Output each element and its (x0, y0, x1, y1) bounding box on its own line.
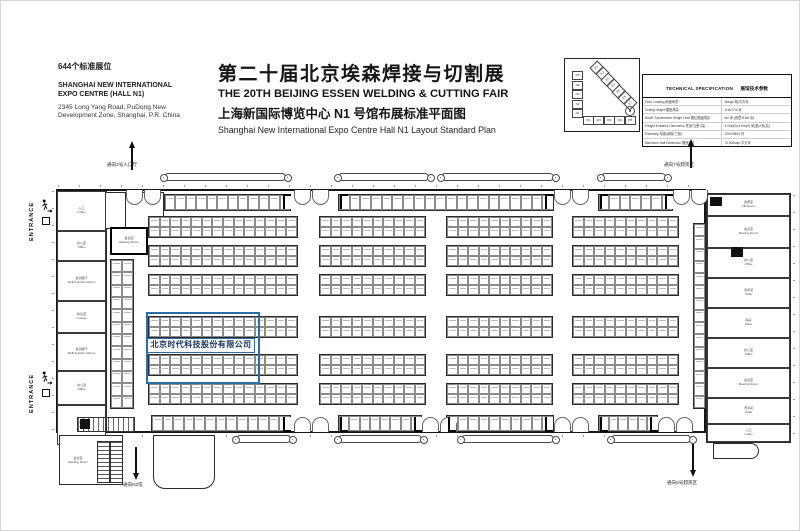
booth-cell (615, 285, 626, 295)
booth-cell (500, 317, 511, 327)
booth-cell (394, 384, 405, 394)
booth-cell (341, 327, 352, 337)
booth-cell (205, 416, 216, 431)
booth-cell (255, 246, 266, 256)
booth-cell (415, 256, 426, 266)
booth-cell (532, 195, 543, 210)
booth-cell (468, 227, 479, 237)
booth-cell (510, 355, 521, 365)
booth-cell (223, 227, 234, 237)
booth-cell (383, 355, 394, 365)
fire-door-mark (600, 417, 608, 432)
booth-cell (647, 394, 658, 404)
booth-cell (170, 384, 181, 394)
booth-cell (341, 365, 352, 375)
booth-cell (415, 285, 426, 295)
booth-cell (202, 227, 213, 237)
booth-cell (170, 246, 181, 256)
booth-cell (191, 246, 202, 256)
door-arc (294, 190, 311, 205)
booth-cell (647, 256, 658, 266)
booth-cell (584, 327, 595, 337)
booth-cell (605, 327, 616, 337)
booth-cell (500, 217, 511, 227)
booth-cell (111, 334, 122, 346)
booth-cell (403, 195, 414, 210)
booth-cell (458, 275, 469, 285)
booth-cell (265, 285, 276, 295)
booth-cell (276, 275, 287, 285)
booth-cell (276, 327, 287, 337)
booth-block (151, 415, 291, 432)
booth-cell (458, 416, 469, 431)
entrance-door-symbol-top (42, 217, 50, 225)
booth-cell (202, 256, 213, 266)
booth-cell (404, 394, 415, 404)
booth-cell (394, 275, 405, 285)
booth-cell (383, 384, 394, 394)
booth-cell (181, 285, 192, 295)
booth-cell (500, 416, 511, 431)
booth-cell (468, 355, 479, 365)
booth-cell (373, 246, 384, 256)
booth-cell (489, 327, 500, 337)
booth-cell (160, 246, 171, 256)
booth-cell (149, 256, 160, 266)
door-arc (676, 417, 693, 432)
canopy-pole (160, 174, 168, 182)
booth-cell (468, 416, 479, 431)
canopy (338, 435, 422, 443)
booth-cell (216, 416, 227, 431)
booth-cell (594, 227, 605, 237)
booth-cell (181, 394, 192, 404)
booth-cell (265, 355, 276, 365)
booth-cell (181, 256, 192, 266)
booth-cell (500, 355, 511, 365)
booth-cell (446, 195, 457, 210)
booth-cell (265, 227, 276, 237)
booth-cell (636, 394, 647, 404)
booth-cell (202, 246, 213, 256)
booth-cell (404, 365, 415, 375)
booth-cell (383, 227, 394, 237)
booth-cell (605, 246, 616, 256)
booth-cell (404, 285, 415, 295)
booth-cell (202, 394, 213, 404)
arrow-entrance2-label: 通向2号入口厅 (107, 162, 137, 168)
booth-cell (234, 246, 245, 256)
floor-plan-page: 644个标准展位 SHANGHAI NEW INTERNATIONAL EXPO… (0, 0, 800, 531)
booth-cell (111, 322, 122, 334)
booth-cell (694, 334, 705, 346)
booth-block (572, 274, 679, 296)
booth-cell (163, 416, 174, 431)
booth-cell (542, 327, 553, 337)
booth-cell (234, 217, 245, 227)
booth-cell (584, 246, 595, 256)
booth-block (446, 245, 553, 267)
booth-cell (122, 371, 133, 383)
booth-cell (657, 317, 668, 327)
arrow-unload6-label: 通向6号卸货区 (667, 480, 697, 486)
booth-cell (594, 355, 605, 365)
booth-block (572, 245, 679, 267)
booth-cell (615, 275, 626, 285)
booth-cell (269, 416, 280, 431)
booth-cell (276, 394, 287, 404)
door-arc (144, 190, 161, 205)
booth-cell (122, 359, 133, 371)
booth-cell (594, 317, 605, 327)
perimeter-room: 会议室Meeting Room (707, 216, 790, 248)
booth-cell (394, 327, 405, 337)
stairs-core (80, 419, 90, 429)
booth-cell (191, 217, 202, 227)
fire-door-mark (650, 417, 658, 432)
booth-cell (341, 394, 352, 404)
canopy-pole (457, 436, 465, 444)
right-wing-lift (731, 247, 743, 257)
booth-cell (352, 384, 363, 394)
booth-cell (255, 285, 266, 295)
booth-cell (468, 327, 479, 337)
booth-cell (286, 227, 297, 237)
booth-cell (265, 217, 276, 227)
booth-cell (594, 217, 605, 227)
booth-cell (500, 227, 511, 237)
booth-cell (373, 327, 384, 337)
booth-cell (276, 365, 287, 375)
booth-cell (447, 217, 458, 227)
booth-cell (542, 355, 553, 365)
booth-cell (694, 347, 705, 359)
booth-cell (694, 273, 705, 285)
booth-cell (415, 227, 426, 237)
booth-cell (341, 217, 352, 227)
canopy (601, 173, 666, 181)
booth-cell (468, 285, 479, 295)
booth-cell (647, 365, 658, 375)
booth-cell (584, 365, 595, 375)
booth-cell (331, 365, 342, 375)
booth-cell (521, 256, 532, 266)
right-dock (713, 443, 759, 459)
booth-cell (647, 355, 658, 365)
booth-cell (636, 285, 647, 295)
booth-cell (521, 394, 532, 404)
booth-cell (605, 275, 616, 285)
booth-cell (373, 227, 384, 237)
booth-cell (425, 195, 436, 210)
entrance-label-bottom: ENTRANCE (29, 367, 35, 413)
booth-cell (584, 384, 595, 394)
room-label-en: Office (78, 388, 86, 392)
booth-cell (573, 355, 584, 365)
booth-cell (458, 256, 469, 266)
booth-cell (415, 355, 426, 365)
booth-cell (373, 317, 384, 327)
fire-door-mark (448, 417, 456, 432)
booth-cell (668, 246, 679, 256)
booth-cell (404, 327, 415, 337)
booth-cell (510, 384, 521, 394)
booth-cell (362, 256, 373, 266)
booth-cell (458, 394, 469, 404)
booth-cell (341, 355, 352, 365)
booth-cell (286, 317, 297, 327)
booth-cell (362, 384, 373, 394)
booth-cell (636, 365, 647, 375)
booth-cell (584, 355, 595, 365)
booth-cell (194, 416, 205, 431)
booth-cell (255, 256, 266, 266)
door-arc (554, 417, 571, 432)
booth-cell (584, 285, 595, 295)
booth-cell (349, 416, 359, 431)
booth-cell (628, 416, 638, 431)
booth-cell (573, 246, 584, 256)
booth-cell (383, 256, 394, 266)
canopy-pole (427, 174, 435, 182)
booth-cell (615, 246, 626, 256)
perimeter-room: 休息室Lounge (57, 301, 106, 333)
fire-door-mark (665, 194, 673, 209)
booth-cell (694, 371, 705, 383)
booth-cell (468, 256, 479, 266)
booth-cell (259, 195, 269, 210)
booth-cell (636, 327, 647, 337)
booth-cell (668, 365, 679, 375)
booth-cell (202, 275, 213, 285)
booth-cell (657, 355, 668, 365)
booth-cell (276, 384, 287, 394)
booth-cell (500, 384, 511, 394)
booth-cell (521, 217, 532, 227)
room-label-en: Meeting Room (739, 383, 759, 387)
room-label-en: Store (745, 323, 752, 327)
booth-cell (286, 256, 297, 266)
booth-block (319, 316, 426, 338)
booth-cell (694, 261, 705, 273)
perimeter-room: 多功能厅Multi-Function Room (57, 333, 106, 371)
booth-cell (626, 317, 637, 327)
booth-cell (657, 285, 668, 295)
booth-cell (594, 384, 605, 394)
booth-cell (331, 275, 342, 285)
booth-cell (542, 365, 553, 375)
booth-cell (394, 285, 405, 295)
booth-cell (276, 227, 287, 237)
booth-cell (510, 394, 521, 404)
booth-cell (404, 317, 415, 327)
room-label-en: Toilet (745, 411, 752, 415)
booth-cell (265, 327, 276, 337)
booth-cell (234, 227, 245, 237)
booth-cell (415, 317, 426, 327)
canopy (164, 173, 286, 181)
booth-cell (255, 275, 266, 285)
booth-cell (489, 256, 500, 266)
booth-cell (152, 416, 163, 431)
booth-cell (468, 365, 479, 375)
booth-cell (499, 195, 510, 210)
booth-cell (111, 346, 122, 358)
booth-block (572, 354, 679, 376)
booth-cell (165, 195, 175, 210)
booth-cell (371, 195, 382, 210)
booth-cell (382, 195, 393, 210)
booth-cell (352, 217, 363, 227)
booth-cell (594, 327, 605, 337)
booth-cell (615, 384, 626, 394)
booth-cell (352, 317, 363, 327)
door-arc (294, 417, 311, 432)
booth-cell (212, 394, 223, 404)
booth-cell (435, 195, 446, 210)
booth-cell (605, 285, 616, 295)
booth-cell (331, 327, 342, 337)
booth-cell (181, 384, 192, 394)
booth-cell (352, 394, 363, 404)
booth-cell (626, 275, 637, 285)
booth-cell (237, 416, 248, 431)
booth-block (446, 415, 554, 432)
booth-cell (383, 327, 394, 337)
booth-cell (223, 275, 234, 285)
booth-cell (694, 249, 705, 261)
booth-cell (694, 298, 705, 310)
room-label-en: Lounge (76, 317, 86, 321)
booth-cell (489, 275, 500, 285)
booth-cell (383, 365, 394, 375)
booth-cell (370, 416, 380, 431)
booth-cell (531, 384, 542, 394)
n2-link-corridor (153, 435, 215, 489)
booth-cell (415, 246, 426, 256)
booth-cell (341, 317, 352, 327)
booth-cell (383, 394, 394, 404)
booth-cell (392, 195, 403, 210)
booth-cell (510, 365, 521, 375)
booth-cell (234, 256, 245, 266)
booth-cell (320, 256, 331, 266)
booth-cell (320, 275, 331, 285)
booth-cell (647, 285, 658, 295)
booth-cell (404, 384, 415, 394)
booth-cell (510, 217, 521, 227)
booth-cell (531, 217, 542, 227)
booth-cell (573, 317, 584, 327)
booth-cell (362, 317, 373, 327)
booth-cell (573, 227, 584, 237)
booth-cell (286, 394, 297, 404)
booth-cell (244, 275, 255, 285)
booth-cell (160, 256, 171, 266)
arrow-head (690, 470, 696, 477)
booth-block (319, 216, 426, 238)
booth-cell (605, 227, 616, 237)
room-label-en: Lobby (77, 211, 85, 215)
booth-cell (594, 394, 605, 404)
booth-cell (320, 227, 331, 237)
booth-cell (122, 309, 133, 321)
booth-cell (542, 227, 553, 237)
booth-cell (191, 227, 202, 237)
booth-cell (573, 275, 584, 285)
booth-cell (331, 217, 342, 227)
booth-cell (415, 217, 426, 227)
booth-cell (615, 217, 626, 227)
booth-cell (609, 195, 619, 210)
booth-cell (415, 327, 426, 337)
booth-cell (111, 383, 122, 395)
booth-cell (636, 384, 647, 394)
booth-cell (362, 217, 373, 227)
booth-cell (479, 416, 490, 431)
booth-cell (479, 355, 490, 365)
booth-cell (468, 394, 479, 404)
annex-room-label-en: Meeting Room (68, 461, 88, 465)
booth-cell (244, 285, 255, 295)
booth-cell (404, 275, 415, 285)
booth-cell (350, 195, 361, 210)
fire-door-mark (283, 417, 291, 432)
perimeter-room: 洗手间Toilet (707, 278, 790, 308)
booth-cell (638, 416, 648, 431)
booth-cell (238, 195, 248, 210)
booth-block (319, 245, 426, 267)
booth-cell (626, 285, 637, 295)
canopy (441, 173, 554, 181)
room-label-en: Toilet (745, 293, 752, 297)
booth-cell (286, 365, 297, 375)
booth-cell (668, 355, 679, 365)
booth-cell (668, 327, 679, 337)
booth-block (572, 216, 679, 238)
booth-cell (276, 246, 287, 256)
booth-block (338, 194, 554, 211)
booth-cell (286, 384, 297, 394)
booth-cell (467, 195, 478, 210)
booth-cell (510, 317, 521, 327)
perimeter-room: 会议室Meeting Room (707, 368, 790, 398)
booth-cell (618, 416, 628, 431)
booth-cell (605, 217, 616, 227)
booth-block (572, 316, 679, 338)
canopy-pole (689, 436, 697, 444)
booth-cell (122, 260, 133, 272)
fire-door-mark (340, 417, 348, 432)
booth-cell (276, 217, 287, 227)
booth-cell (286, 327, 297, 337)
booth-cell (286, 217, 297, 227)
booth-cell (447, 256, 458, 266)
room-label-en: Office (78, 246, 86, 250)
booth-cell (531, 327, 542, 337)
entrance-door-symbol-bottom (42, 389, 50, 397)
canopy-pole (552, 174, 560, 182)
booth-cell (657, 227, 668, 237)
booth-block (319, 274, 426, 296)
booth-cell (181, 217, 192, 227)
booth-cell (531, 256, 542, 266)
booth-cell (111, 309, 122, 321)
booth-cell (636, 355, 647, 365)
booth-cell (415, 275, 426, 285)
booth-cell (223, 394, 234, 404)
booth-cell (458, 327, 469, 337)
